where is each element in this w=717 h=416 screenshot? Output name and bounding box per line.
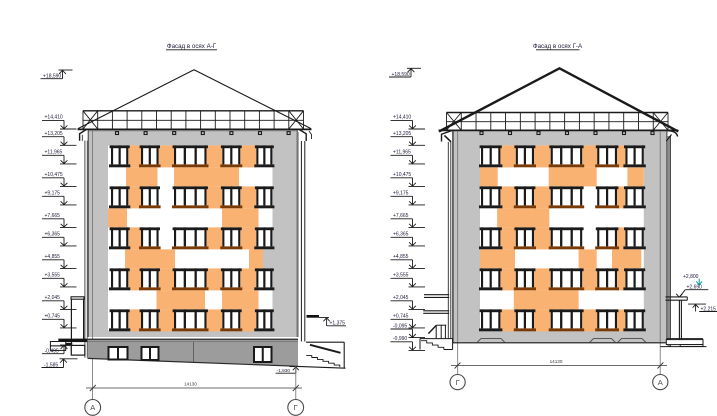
svg-text:Г: Г <box>456 378 460 387</box>
svg-text:+0,745: +0,745 <box>45 314 61 320</box>
svg-text:14130: 14130 <box>550 359 563 364</box>
svg-text:+6,365: +6,365 <box>393 232 409 238</box>
svg-text:+7,665: +7,665 <box>393 213 409 219</box>
svg-text:+6,365: +6,365 <box>45 232 61 238</box>
svg-text:+10,475: +10,475 <box>393 172 411 178</box>
svg-text:+9,175: +9,175 <box>45 191 61 197</box>
svg-text:+4,855: +4,855 <box>45 254 61 260</box>
svg-text:+14,410: +14,410 <box>393 115 411 121</box>
svg-text:+3,555: +3,555 <box>45 273 61 279</box>
svg-text:А: А <box>658 378 663 387</box>
svg-text:+4,855: +4,855 <box>393 254 409 260</box>
svg-text:+2,045: +2,045 <box>393 295 409 301</box>
svg-text:+11,965: +11,965 <box>393 150 411 156</box>
svg-text:Фасад в осях Г-А: Фасад в осях Г-А <box>533 43 583 50</box>
svg-text:-0,990: -0,990 <box>393 336 407 342</box>
svg-text:+7,665: +7,665 <box>45 213 61 219</box>
svg-text:+2,045: +2,045 <box>45 295 61 301</box>
svg-text:+2,800: +2,800 <box>683 274 699 280</box>
svg-text:+14,410: +14,410 <box>45 115 63 121</box>
svg-text:+10,475: +10,475 <box>45 172 63 178</box>
svg-text:Г: Г <box>294 403 298 412</box>
svg-text:+13,205: +13,205 <box>45 131 63 137</box>
svg-text:Фасад в осях А-Г: Фасад в осях А-Г <box>167 43 217 50</box>
svg-text:+9,175: +9,175 <box>393 191 409 197</box>
svg-text:+11,965: +11,965 <box>45 150 63 156</box>
svg-text:+13,205: +13,205 <box>393 131 411 137</box>
svg-text:А: А <box>90 403 95 412</box>
svg-text:-0,095: -0,095 <box>393 323 407 329</box>
svg-text:14130: 14130 <box>184 382 197 387</box>
svg-text:+3,555: +3,555 <box>393 273 409 279</box>
svg-text:+0,745: +0,745 <box>393 314 409 320</box>
